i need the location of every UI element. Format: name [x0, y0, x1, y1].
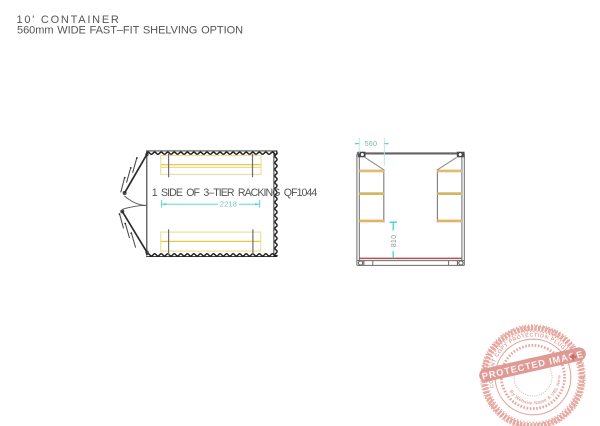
svg-text:560: 560 — [365, 139, 378, 148]
svg-text:2218: 2218 — [220, 200, 237, 209]
svg-text:1 SIDE OF 3–TIER RACKING QF104: 1 SIDE OF 3–TIER RACKING QF1044 — [152, 187, 318, 199]
svg-text:810: 810 — [389, 235, 398, 248]
svg-text:560mm WIDE FAST–FIT SHELVING O: 560mm WIDE FAST–FIT SHELVING OPTION — [17, 25, 243, 37]
